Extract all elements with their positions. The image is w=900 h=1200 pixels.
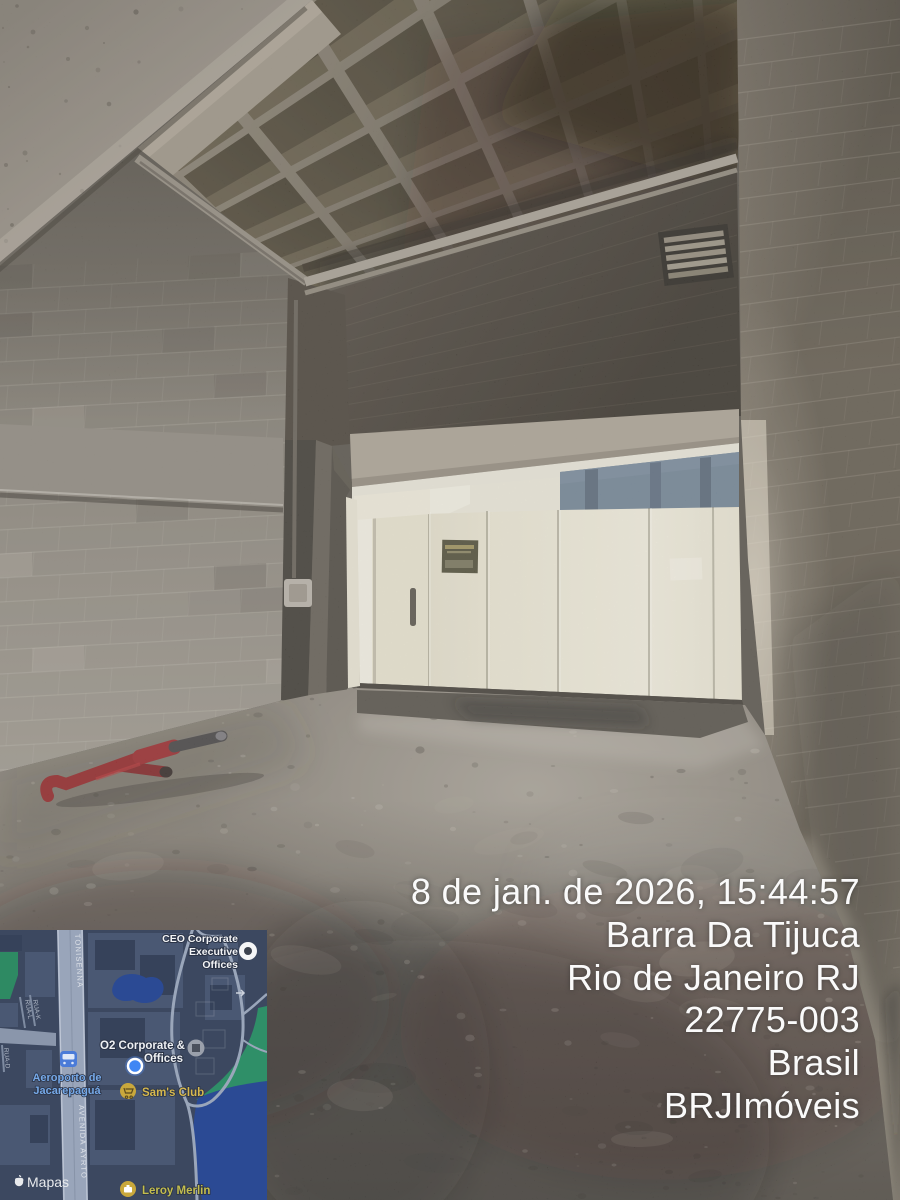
svg-text:Jacarepaguá: Jacarepaguá <box>33 1085 101 1097</box>
svg-text:Mapas: Mapas <box>27 1174 69 1190</box>
svg-text:Executive: Executive <box>189 946 238 958</box>
svg-text:CEO Corporate: CEO Corporate <box>162 933 238 945</box>
svg-text:Offices: Offices <box>144 1053 183 1065</box>
svg-text:O2 Corporate &: O2 Corporate & <box>100 1040 185 1052</box>
svg-text:Offices: Offices <box>202 959 238 971</box>
svg-text:Sam's Club: Sam's Club <box>142 1087 204 1099</box>
svg-text:Leroy Merlin: Leroy Merlin <box>142 1185 210 1197</box>
svg-text:Aeroporto de: Aeroporto de <box>32 1072 101 1084</box>
